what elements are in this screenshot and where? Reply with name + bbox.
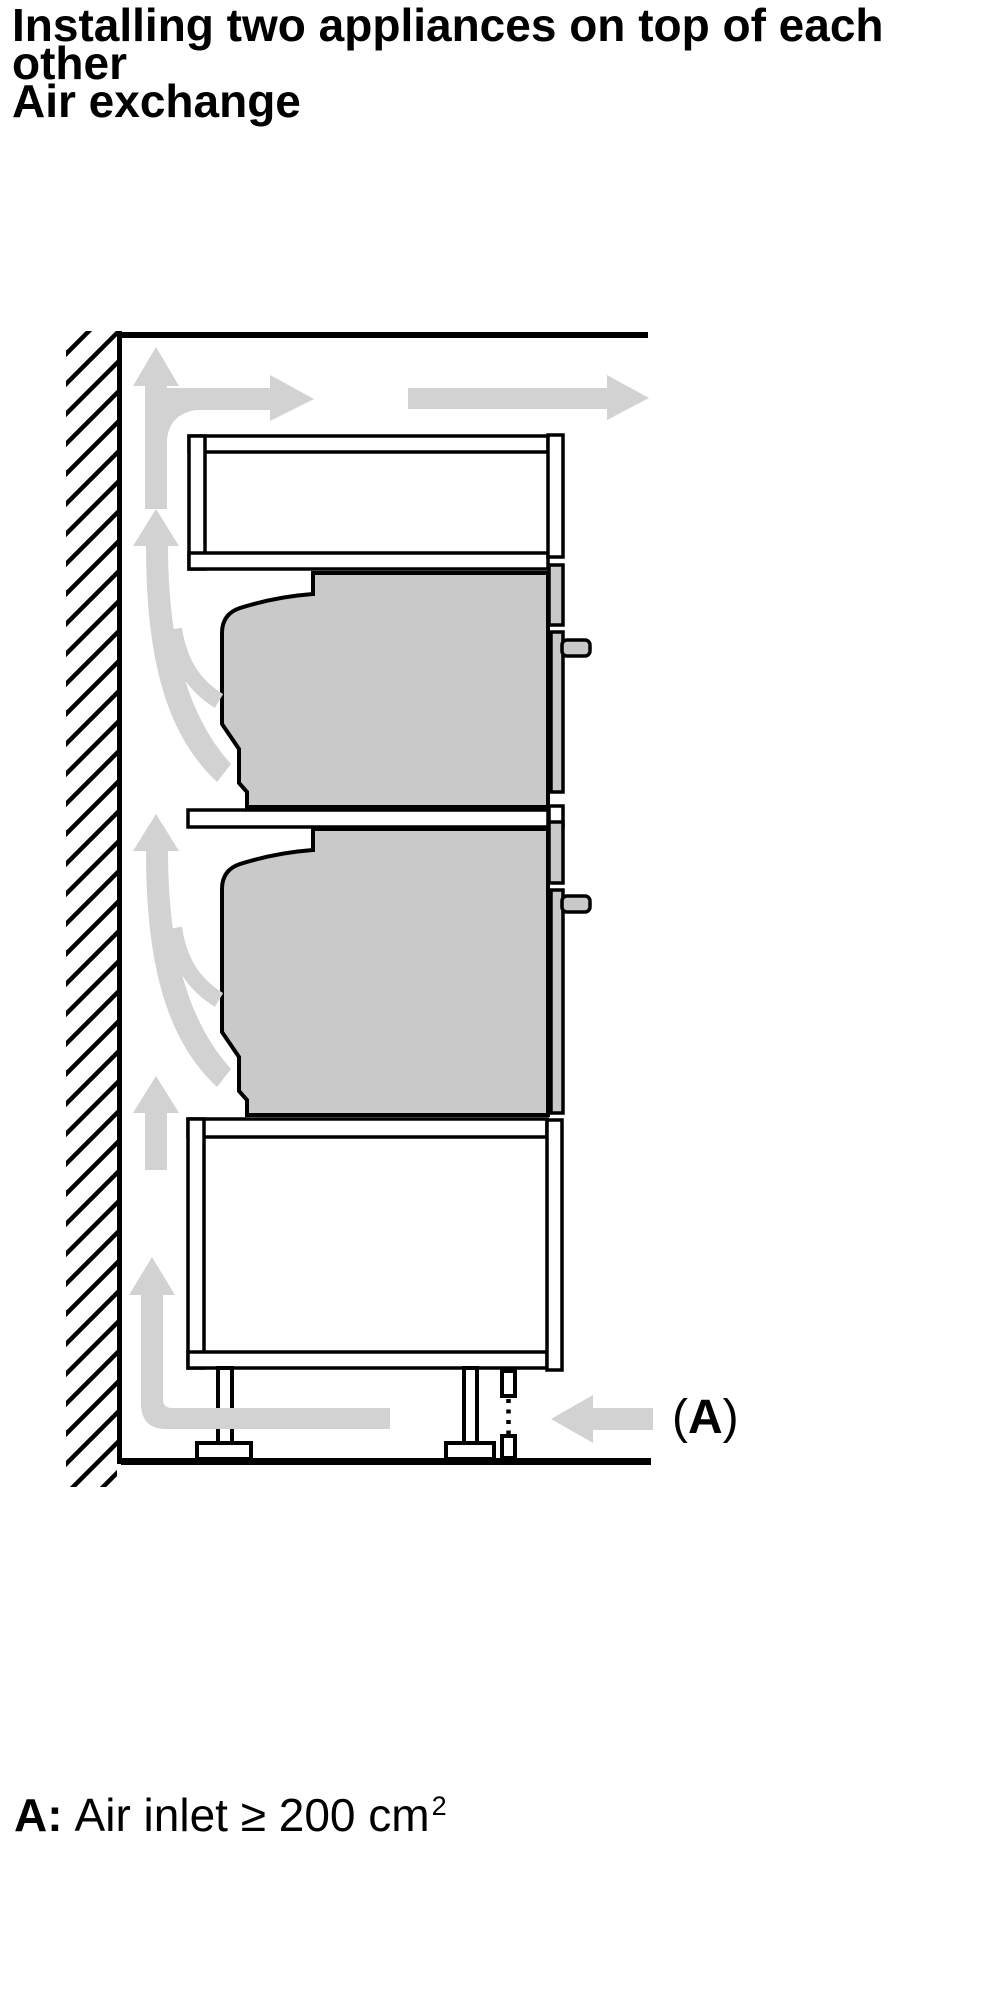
subtitle-air-exchange: Air exchange xyxy=(12,82,884,120)
label-paren-close: ) xyxy=(723,1391,739,1444)
worktop-line xyxy=(121,332,648,338)
left-foot xyxy=(197,1443,251,1459)
inlet-cutout-top xyxy=(502,1371,515,1396)
right-leg xyxy=(464,1368,477,1444)
label-letter-a: A xyxy=(688,1391,723,1444)
base-cabinet-left-panel xyxy=(188,1119,204,1368)
caption-text: Air inlet ≥ 200 cm xyxy=(75,1789,430,1841)
upper-appliance xyxy=(222,565,590,807)
caption-air-inlet: A:Air inlet ≥ 200 cm2 xyxy=(14,1788,447,1842)
base-cabinet xyxy=(188,1119,562,1370)
caption-superscript: 2 xyxy=(432,1791,447,1821)
shelf-board xyxy=(188,810,548,827)
airflow-curved-arrow-lower-icon xyxy=(133,814,231,1087)
label-paren-open: ( xyxy=(672,1391,688,1444)
airflow-floor-l-arrow-icon xyxy=(129,1257,390,1429)
right-foot xyxy=(446,1443,494,1459)
left-leg xyxy=(218,1368,232,1444)
airflow-curved-arrow-upper-icon xyxy=(133,509,231,782)
page-title: Installing two appliances on top of each… xyxy=(12,6,884,120)
manual-page: Installing two appliances on top of each… xyxy=(0,0,1000,2000)
intermediate-shelf xyxy=(188,806,563,827)
lower-appliance-control-panel xyxy=(549,822,563,883)
caption-prefix: A: xyxy=(14,1789,63,1841)
installation-diagram xyxy=(0,0,1000,2000)
base-cabinet-front-rail xyxy=(547,1120,562,1370)
wall-face-line xyxy=(117,331,122,1464)
top-compartment-top-panel xyxy=(189,436,548,452)
base-cabinet-bottom-panel xyxy=(188,1352,547,1368)
upper-appliance-door xyxy=(551,632,563,792)
lower-appliance-body xyxy=(222,829,548,1115)
lower-appliance-handle xyxy=(562,896,590,912)
top-compartment-left-panel xyxy=(189,436,205,569)
upper-appliance-control-panel xyxy=(549,565,563,625)
airflow-exit-right-arrow-icon xyxy=(408,375,649,420)
top-compartment-front-rail xyxy=(548,435,563,557)
top-compartment-bottom-panel xyxy=(189,553,548,569)
plinth-air-inlet xyxy=(502,1371,515,1458)
airflow-base-up-arrow-icon xyxy=(133,1076,179,1170)
top-compartment xyxy=(189,435,563,569)
lower-appliance-door xyxy=(551,890,563,1113)
airflow-top-up-arrow-icon xyxy=(133,347,179,509)
air-inlet-label: (A) xyxy=(672,1390,739,1445)
inlet-cutout-bottom xyxy=(502,1436,515,1458)
upper-appliance-body xyxy=(222,573,548,807)
base-cabinet-top-panel xyxy=(188,1119,547,1137)
wall-hatching-icon xyxy=(66,331,117,1487)
wall xyxy=(66,331,122,1487)
lower-appliance xyxy=(222,822,590,1115)
title-line-1: Installing two appliances on top of each xyxy=(12,6,884,44)
air-inlet-left-arrow-icon xyxy=(551,1395,653,1443)
upper-appliance-handle xyxy=(562,640,590,656)
airflow-top-right-branch-arrow-icon xyxy=(157,375,314,439)
